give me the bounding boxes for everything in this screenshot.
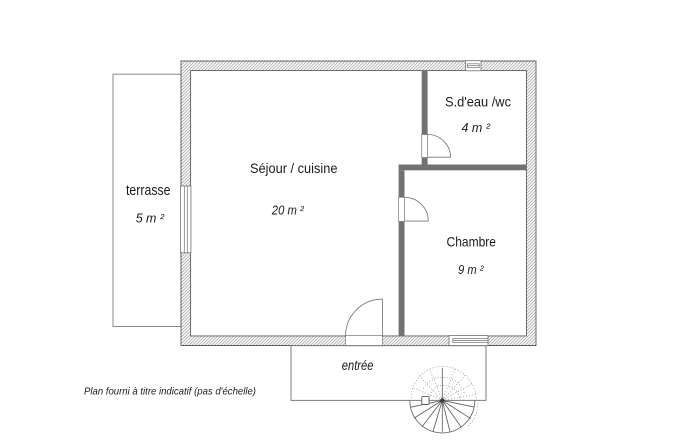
svg-text:entrée: entrée: [342, 357, 374, 373]
svg-text:Séjour / cuisine: Séjour / cuisine: [250, 161, 338, 176]
svg-text:S.d'eau /wc: S.d'eau /wc: [445, 94, 511, 110]
svg-text:9 m ²: 9 m ²: [458, 263, 484, 277]
svg-text:Chambre: Chambre: [447, 234, 497, 249]
svg-text:5 m ²: 5 m ²: [136, 211, 165, 226]
svg-text:20 m ²: 20 m ²: [271, 203, 305, 217]
svg-text:Plan fourni à titre indicatif: Plan fourni à titre indicatif (pas d'éch…: [84, 387, 256, 398]
svg-text:4 m ²: 4 m ²: [462, 121, 491, 135]
svg-text:terrasse: terrasse: [126, 183, 171, 199]
